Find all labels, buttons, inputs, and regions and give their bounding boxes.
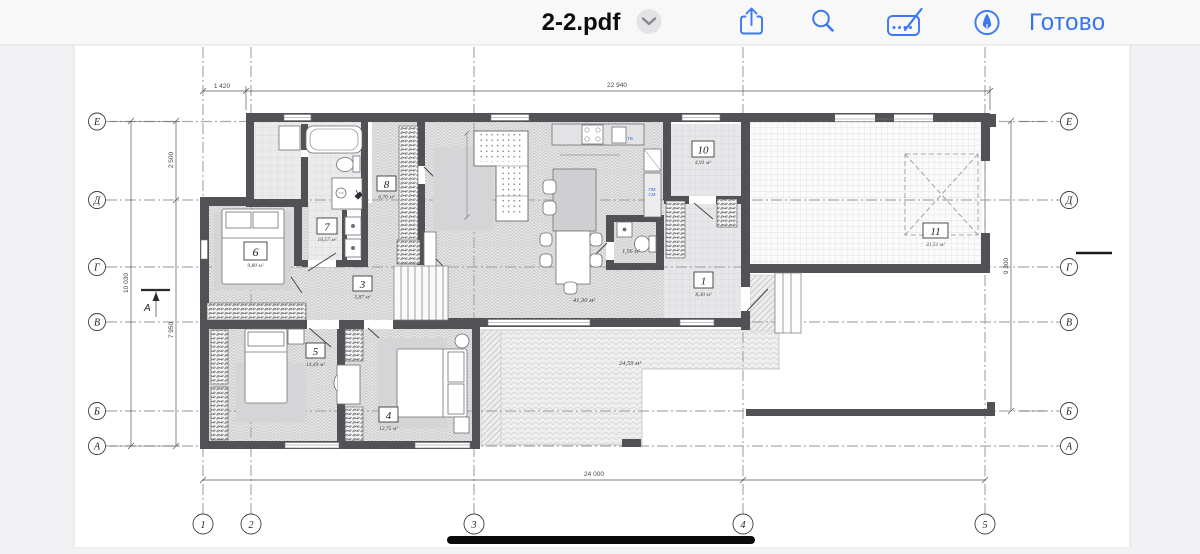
svg-text:9 300: 9 300 <box>1003 257 1010 274</box>
svg-text:В: В <box>1066 318 1072 329</box>
svg-text:2 500: 2 500 <box>168 151 175 168</box>
svg-text:1: 1 <box>201 520 206 531</box>
svg-text:3: 3 <box>471 520 477 531</box>
svg-text:А: А <box>143 303 151 314</box>
svg-text:1: 1 <box>701 276 707 288</box>
svg-text:9,80 м²: 9,80 м² <box>247 263 264 269</box>
svg-text:14,49 м²: 14,49 м² <box>306 361 325 368</box>
svg-text:1,56 м²: 1,56 м² <box>622 249 640 255</box>
svg-text:24 000: 24 000 <box>584 471 604 478</box>
svg-text:ТВ: ТВ <box>627 136 633 141</box>
svg-text:Е: Е <box>1065 117 1072 128</box>
svg-text:8,30 м²: 8,30 м² <box>695 292 712 298</box>
svg-text:4: 4 <box>386 410 392 422</box>
svg-text:3: 3 <box>359 279 366 291</box>
svg-text:Е: Е <box>93 117 100 128</box>
svg-text:10: 10 <box>698 145 710 157</box>
svg-text:Б: Б <box>1065 407 1072 418</box>
svg-text:2: 2 <box>249 520 254 531</box>
svg-text:Д: Д <box>1065 196 1073 207</box>
svg-text:24,59 м²: 24,59 м² <box>619 360 642 367</box>
svg-text:31,51 м²: 31,51 м² <box>925 242 945 248</box>
svg-text:5: 5 <box>313 346 319 358</box>
svg-text:10 030: 10 030 <box>123 273 130 293</box>
svg-text:12,75 м²: 12,75 м² <box>379 426 398 432</box>
svg-text:10,57 м²: 10,57 м² <box>318 237 337 243</box>
svg-text:8: 8 <box>384 179 390 191</box>
svg-text:Б: Б <box>93 407 100 418</box>
svg-text:1 420: 1 420 <box>214 83 231 90</box>
svg-text:5,87 м²: 5,87 м² <box>354 295 371 301</box>
svg-text:А: А <box>93 442 101 453</box>
svg-text:4,91 м²: 4,91 м² <box>695 159 712 166</box>
svg-text:2-2.pdf: 2-2.pdf <box>542 9 622 36</box>
svg-text:22 940: 22 940 <box>607 82 627 89</box>
svg-text:А: А <box>1065 442 1073 453</box>
svg-text:Д: Д <box>93 196 101 207</box>
svg-text:7 950: 7 950 <box>168 321 175 338</box>
svg-text:Готово: Готово <box>1029 9 1106 36</box>
svg-text:4: 4 <box>741 520 746 531</box>
svg-text:7: 7 <box>324 222 330 234</box>
svg-text:Г: Г <box>93 263 100 274</box>
svg-text:СМ: СМ <box>649 192 656 197</box>
svg-text:Г: Г <box>1065 263 1072 274</box>
svg-text:6: 6 <box>253 245 259 259</box>
svg-text:11: 11 <box>930 226 940 238</box>
svg-text:6,70 м²: 6,70 м² <box>378 195 395 201</box>
svg-text:5: 5 <box>983 520 988 531</box>
svg-text:41,30 м²: 41,30 м² <box>573 297 596 304</box>
svg-text:В: В <box>94 318 100 329</box>
